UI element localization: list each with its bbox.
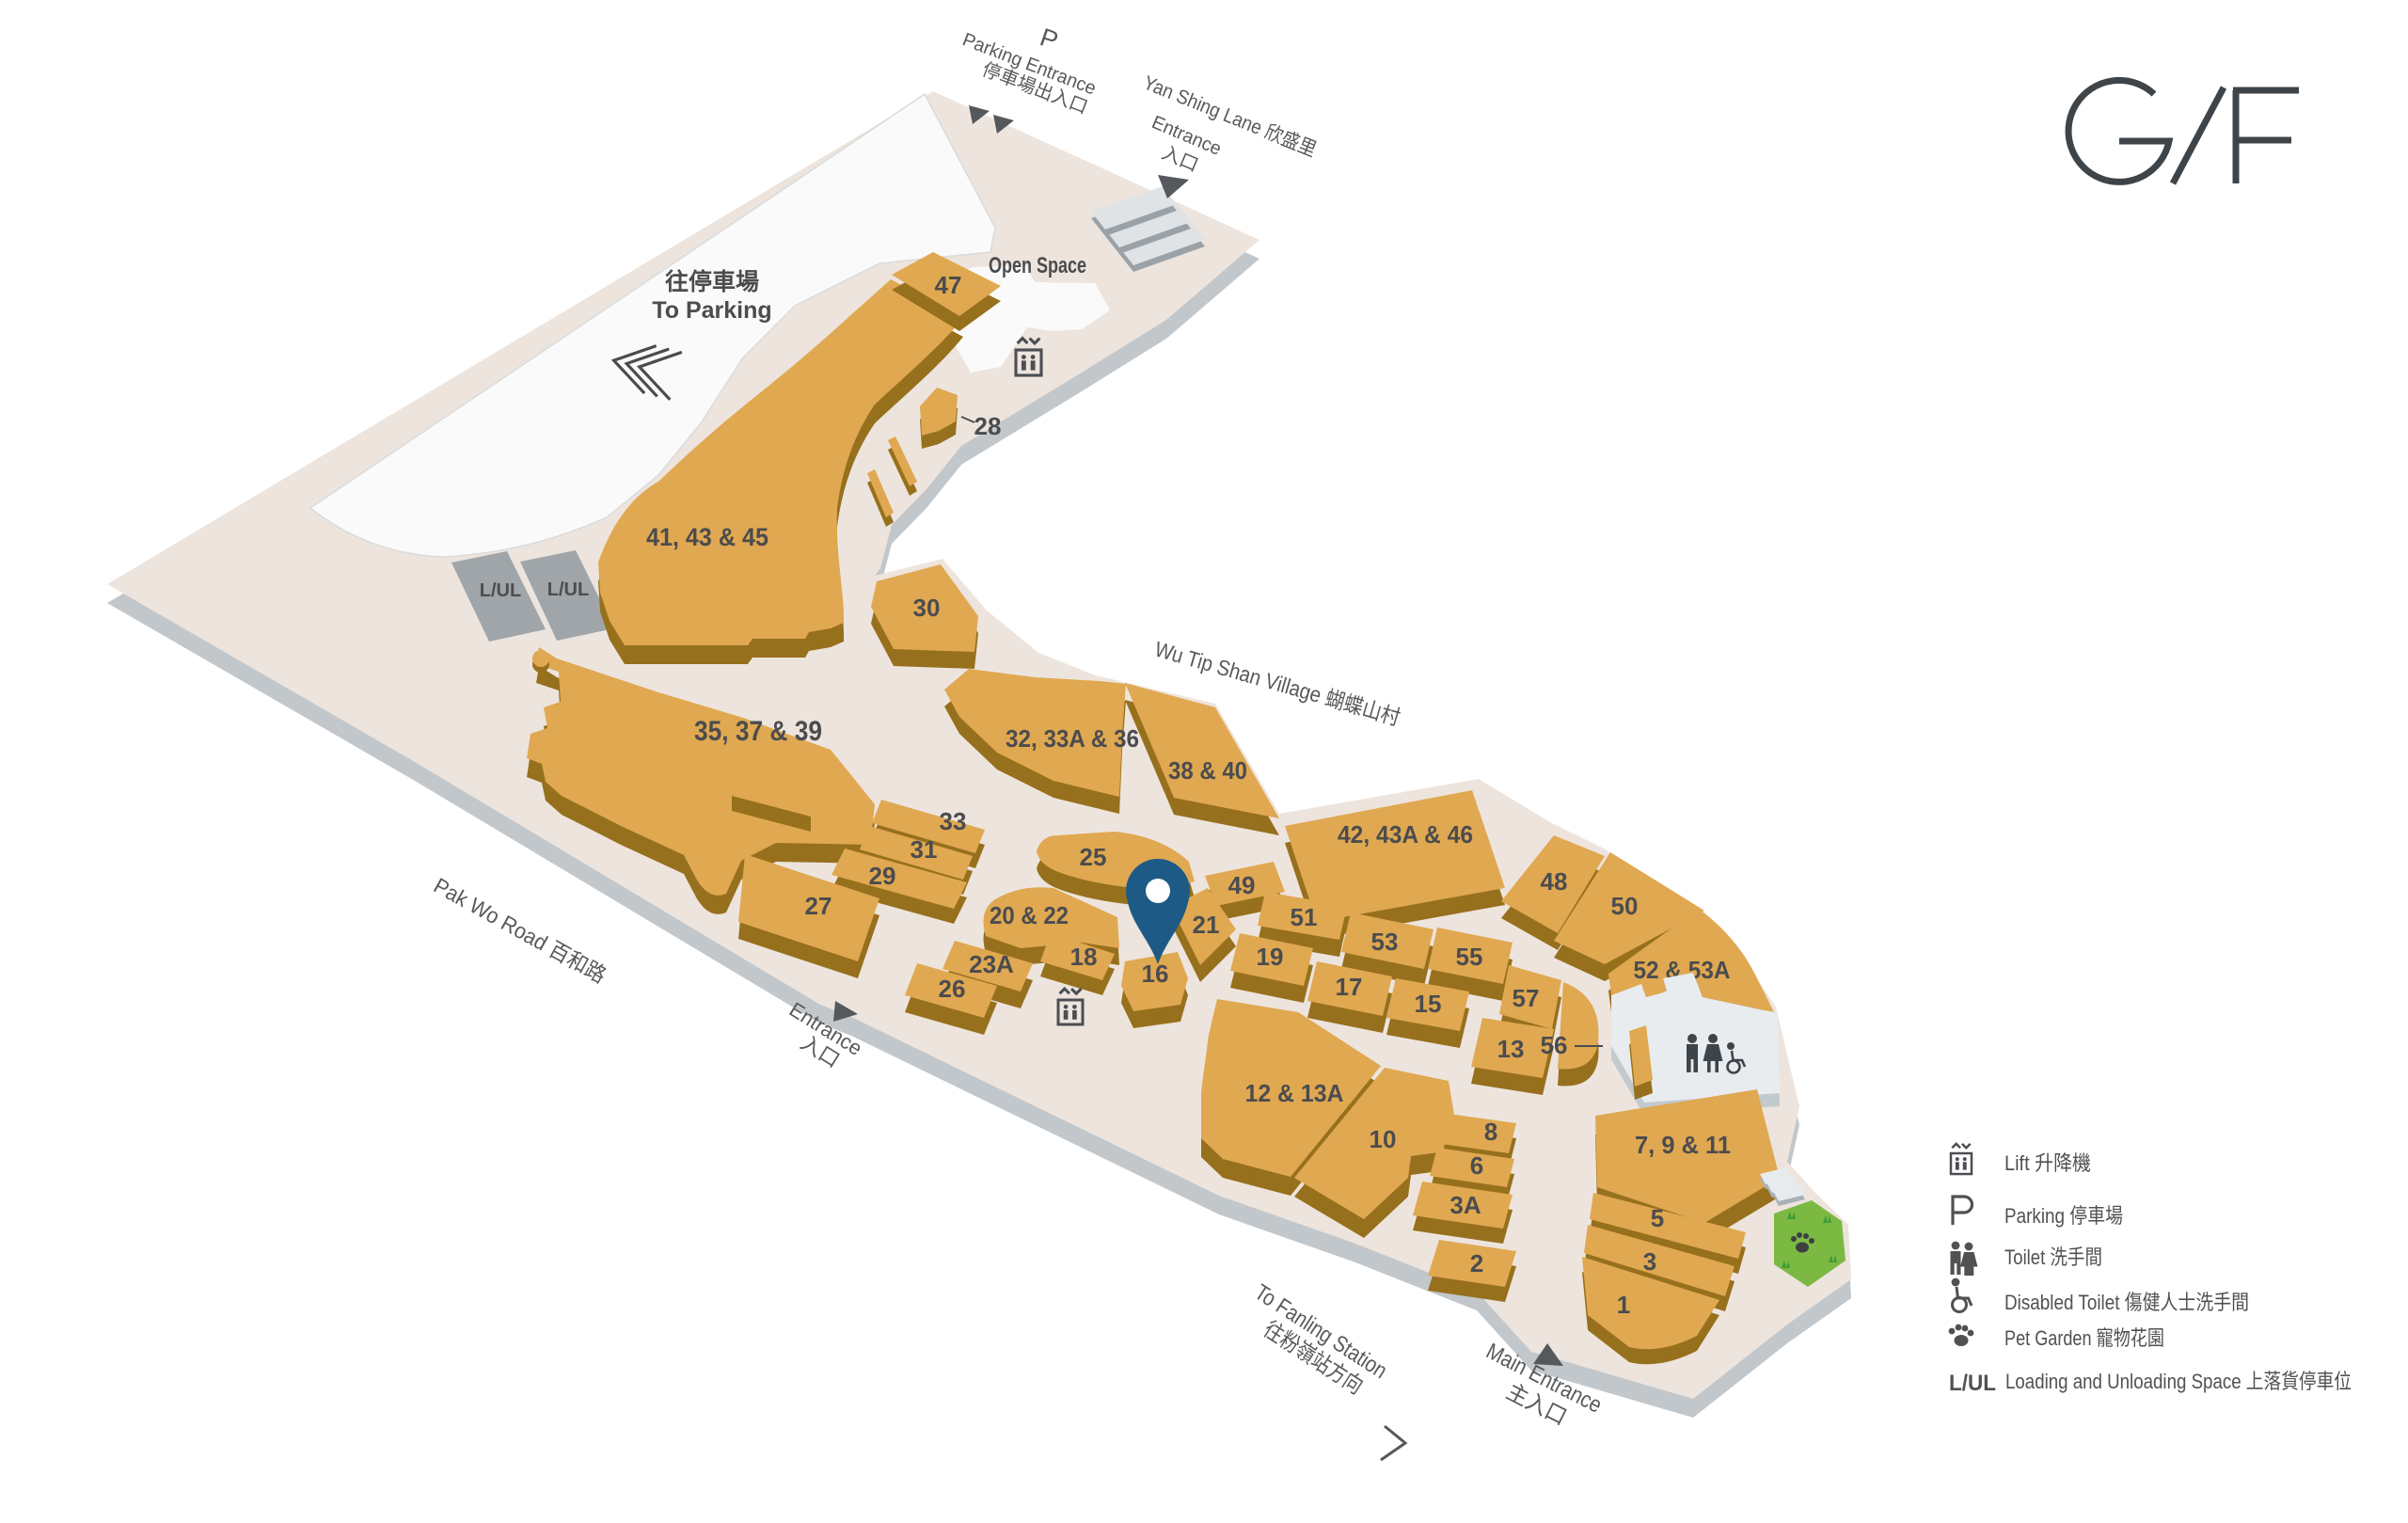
svg-text:49: 49 [1228,871,1256,899]
svg-text:23A: 23A [969,950,1014,978]
svg-text:30: 30 [913,594,941,622]
svg-text:To Parking: To Parking [652,297,771,324]
svg-text:26: 26 [939,975,966,1003]
svg-text:56: 56 [1541,1031,1568,1059]
svg-text:3A: 3A [1450,1191,1481,1219]
svg-text:15: 15 [1415,990,1442,1018]
svg-text:13: 13 [1497,1035,1525,1063]
svg-text:L/UL: L/UL [1949,1371,1996,1396]
svg-text:Pet Garden 寵物花園: Pet Garden 寵物花園 [2004,1326,2164,1350]
svg-text:Disabled Toilet 傷健人士洗手間: Disabled Toilet 傷健人士洗手間 [2004,1291,2249,1314]
svg-text:Toilet 洗手間: Toilet 洗手間 [2004,1245,2102,1269]
svg-text:8: 8 [1484,1118,1497,1146]
svg-text:33: 33 [940,807,967,835]
svg-text:47: 47 [935,271,962,299]
svg-text:3: 3 [1643,1247,1656,1276]
svg-text:Lift 升降機: Lift 升降機 [2004,1151,2091,1175]
svg-text:20 & 22: 20 & 22 [990,901,1069,929]
svg-text:2: 2 [1470,1249,1483,1277]
svg-text:29: 29 [869,862,896,890]
svg-text:7, 9 & 11: 7, 9 & 11 [1635,1131,1731,1159]
svg-text:19: 19 [1257,943,1284,971]
svg-text:16: 16 [1142,960,1169,988]
svg-text:12 & 13A: 12 & 13A [1245,1079,1344,1107]
svg-text:Open Space: Open Space [989,253,1086,278]
svg-text:17: 17 [1336,973,1363,1001]
svg-text:L/UL: L/UL [480,580,521,601]
svg-text:38 & 40: 38 & 40 [1168,756,1247,785]
svg-text:31: 31 [911,835,938,864]
svg-text:27: 27 [805,892,832,920]
svg-text:57: 57 [1513,984,1540,1012]
svg-text:51: 51 [1291,903,1318,931]
svg-text:往停車場: 往停車場 [665,268,759,295]
svg-text:L/UL: L/UL [547,579,589,600]
svg-text:50: 50 [1611,892,1639,920]
svg-text:Loading and Unloading Space 上落: Loading and Unloading Space 上落貨停車位 [2005,1370,2352,1393]
svg-text:6: 6 [1470,1151,1483,1180]
svg-text:41, 43 & 45: 41, 43 & 45 [646,523,768,551]
svg-text:1: 1 [1617,1291,1630,1319]
svg-text:21: 21 [1193,911,1220,939]
svg-text:32, 33A & 36: 32, 33A & 36 [1006,724,1139,753]
svg-text:5: 5 [1651,1204,1664,1232]
svg-text:42, 43A & 46: 42, 43A & 46 [1338,820,1473,849]
svg-text:35, 37 & 39: 35, 37 & 39 [694,716,822,747]
svg-text:Parking 停車場: Parking 停車場 [2004,1204,2123,1228]
svg-text:53: 53 [1371,928,1399,956]
svg-text:25: 25 [1080,843,1107,871]
svg-text:10: 10 [1370,1125,1397,1153]
svg-text:48: 48 [1541,867,1568,896]
svg-text:28: 28 [974,412,1002,440]
svg-text:55: 55 [1456,943,1483,971]
svg-text:18: 18 [1070,943,1098,971]
